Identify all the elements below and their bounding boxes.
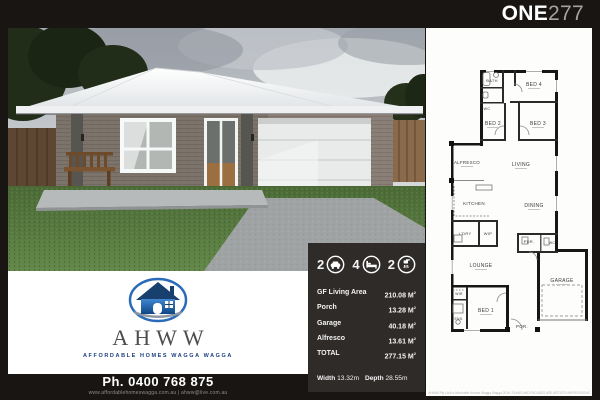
dimensions-line: Width 13.32m Depth 28.55m — [317, 375, 416, 382]
spec-label: Alfresco — [317, 333, 345, 348]
room-label-alfresco: ALFRESCO — [454, 160, 480, 165]
room-label-bed3: BED 3 — [530, 121, 546, 127]
model-name-light: 277 — [548, 2, 584, 25]
spec-label: GF Living Area — [317, 287, 367, 302]
spec-row-garage: Garage 40.18 M2 — [317, 318, 416, 333]
bed-icon — [362, 255, 381, 274]
shower-icon — [397, 255, 416, 274]
specs-panel: 2 4 2 — [308, 243, 425, 392]
spec-value: 277.15 M2 — [385, 348, 416, 363]
room-label-ldry: L'DRY — [459, 231, 472, 236]
spec-value: 210.08 M2 — [385, 287, 416, 302]
plan-piers — [449, 141, 540, 332]
car-icon — [326, 255, 345, 274]
logo-panel: AHWW AFFORDABLE HOMES WAGGA WAGGA — [8, 271, 308, 374]
brochure-page: ONE277 — [0, 0, 600, 400]
depth-label: Depth — [365, 375, 384, 382]
room-label-por: POR. — [516, 324, 528, 329]
room-label-ens: ENS. — [454, 317, 463, 321]
spec-value: 13.61 M2 — [388, 333, 416, 348]
garage-count-value: 2 — [317, 257, 324, 272]
bathroom-count: 2 — [388, 255, 416, 274]
room-label-bed1: BED 1 — [478, 308, 494, 314]
spec-value: 40.18 M2 — [388, 318, 416, 333]
bathroom-count-value: 2 — [388, 257, 395, 272]
spec-label: Porch — [317, 302, 337, 317]
spec-row-alfresco: Alfresco 13.61 M2 — [317, 333, 416, 348]
room-label-lounge: LOUNGE — [470, 263, 493, 269]
spec-row-living: GF Living Area 210.08 M2 — [317, 287, 416, 302]
room-label-wc2: WC — [549, 241, 556, 245]
spec-row-porch: Porch 13.28 M2 — [317, 302, 416, 317]
contact-strip: Ph. 0400 768 875 www.affordablehomeswagg… — [8, 374, 308, 397]
spec-label: Garage — [317, 318, 341, 333]
bedroom-count: 4 — [352, 255, 380, 274]
room-label-pdr: PDR. — [524, 239, 535, 244]
fence-right — [393, 120, 425, 182]
french-door — [204, 118, 238, 192]
room-label-wc: WC — [484, 107, 491, 111]
website-email: www.affordablehomeswagga.com.au | ahww@l… — [8, 390, 308, 397]
room-label-bed2: BED 2 — [485, 121, 501, 127]
spec-value: 13.28 M2 — [388, 302, 416, 317]
room-label-wip: WIP — [484, 231, 492, 236]
logo-tagline: AFFORDABLE HOMES WAGGA WAGGA — [83, 353, 233, 359]
ahww-logo-icon — [126, 277, 190, 325]
logo-brand-text: AHWW — [106, 327, 209, 349]
width-label: Width — [317, 375, 335, 382]
house-photo — [8, 28, 425, 271]
plan-disclaimer: AHWW Pty Ltd t/a Affordable Homes Wagga … — [428, 391, 589, 395]
floorplan-drawing: BATH WC BED 4 BED 2 BED 3 ALFRESCO LIVIN… — [426, 28, 592, 396]
house-render-scene — [8, 28, 425, 271]
room-label-garage: GARAGE — [550, 278, 574, 284]
logo-window — [165, 301, 173, 308]
room-label-bath: BATH — [486, 78, 498, 83]
porch-slab — [36, 190, 268, 208]
room-label-living: LIVING — [512, 162, 530, 168]
model-name: ONE277 — [502, 0, 584, 27]
depth-value: 28.55m — [385, 375, 407, 382]
width-value: 13.32m — [337, 375, 359, 382]
feature-icons-row: 2 4 2 — [317, 255, 416, 274]
spec-label: TOTAL — [317, 348, 340, 363]
room-label-dining: DINING — [524, 203, 543, 209]
spec-row-total: TOTAL 277.15 M2 — [317, 348, 416, 363]
garage-count: 2 — [317, 255, 345, 274]
bedroom-count-value: 4 — [352, 257, 359, 272]
model-name-bold: ONE — [502, 2, 548, 25]
room-label-kitchen: KITCHEN — [463, 201, 485, 206]
phone-number: Ph. 0400 768 875 — [8, 374, 308, 390]
front-window — [120, 118, 176, 173]
room-label-wir: WIR — [455, 292, 463, 296]
plan-garage-details — [538, 285, 587, 320]
room-label-bed4: BED 4 — [526, 82, 542, 88]
floorplan-panel: BATH WC BED 4 BED 2 BED 3 ALFRESCO LIVIN… — [426, 28, 592, 396]
